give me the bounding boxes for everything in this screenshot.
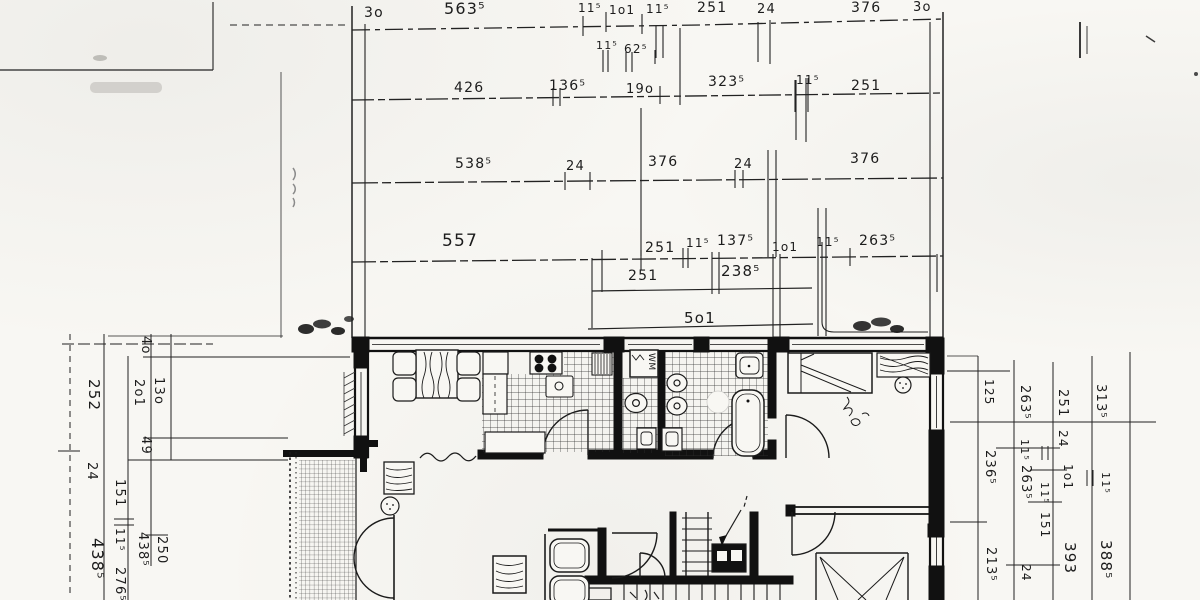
bath-sink	[736, 353, 763, 378]
dim-label: 11⁵	[796, 74, 820, 86]
dim-label: 11⁵	[1100, 472, 1111, 494]
dim-label: 62⁵	[624, 43, 648, 55]
stairs-down	[624, 584, 780, 600]
dim-label: 24	[1020, 564, 1032, 582]
dim-label: 13o	[152, 377, 165, 405]
dim-label: 538⁵	[455, 157, 492, 171]
bed-1	[788, 353, 872, 393]
dining-table	[416, 350, 458, 398]
dim-label: 251	[697, 1, 727, 15]
armchairs	[545, 534, 589, 600]
dim-label: 323⁵	[708, 75, 745, 89]
illegible-stamp	[293, 168, 295, 207]
stove	[530, 352, 562, 374]
dim-label: 251	[851, 79, 881, 93]
dim-label: 438⁵	[89, 538, 105, 580]
bedroom1-door	[786, 415, 829, 458]
dim-label: 1o1	[609, 4, 635, 16]
dim-label: 236⁵	[983, 450, 996, 485]
right-dimension-lines	[947, 352, 1156, 600]
dim-label: 238⁵	[721, 264, 760, 279]
floor-plan-scan: 3o 563⁵ 11⁵ 1o1 11⁵ 251 24 376 3o 11⁵ 62…	[0, 0, 1200, 600]
dim-label: 2o1	[132, 379, 145, 407]
bathroom	[662, 352, 768, 456]
dim-label: 3o	[364, 6, 384, 20]
wash-basin	[637, 428, 656, 449]
floor-plan-drawing	[0, 0, 1200, 600]
dim-label: 251	[628, 269, 658, 283]
dim-label: 11⁵	[1019, 439, 1030, 461]
dim-label: 1o1	[1062, 464, 1074, 490]
dim-label: 136⁵	[549, 79, 586, 93]
dim-label: 251	[1056, 389, 1069, 417]
dim-label: 251	[645, 241, 675, 255]
radiator	[592, 353, 612, 375]
dim-label: 11⁵	[1039, 482, 1050, 504]
dim-label: 388⁵	[1098, 540, 1113, 579]
dim-label: 137⁵	[717, 234, 754, 248]
dim-label: 376	[850, 152, 880, 166]
dim-label: 1o1	[772, 241, 798, 253]
living-room	[420, 453, 589, 600]
scan-artifacts	[90, 22, 1198, 600]
dim-label: 426	[454, 81, 484, 95]
toilet	[625, 394, 647, 413]
dim-label: 11⁵	[816, 236, 840, 248]
dim-label: 5o1	[684, 311, 716, 326]
dim-label: 125	[983, 379, 995, 406]
dim-label: 313⁵	[1094, 384, 1107, 419]
dim-label: 376	[648, 155, 678, 169]
scan-whiteout-spot	[707, 391, 729, 413]
dim-label: 49	[139, 436, 152, 455]
balcony-stool	[381, 497, 399, 515]
dim-label: 19o	[626, 83, 654, 96]
dim-label: 151	[1039, 512, 1051, 539]
stool	[895, 377, 911, 393]
dim-label: 438⁵	[136, 532, 149, 567]
handwritten-note-scribble	[844, 397, 869, 425]
balcony-floor-grid	[299, 460, 355, 600]
dim-label: 24	[85, 462, 98, 481]
planter-box	[384, 462, 414, 494]
bedroom-2	[816, 553, 908, 600]
wardrobe	[877, 353, 930, 377]
balcony-french-doors	[354, 515, 394, 600]
stove-box	[712, 544, 746, 572]
dim-label: 393	[1062, 542, 1077, 574]
dim-label: 24	[566, 160, 585, 173]
dim-label: 213⁵	[984, 547, 997, 582]
coffee-table	[493, 556, 526, 593]
kitchen-sink	[546, 376, 573, 397]
break-line	[420, 453, 476, 461]
dim-label: 557	[442, 233, 478, 250]
dim-label: 263⁵	[1018, 385, 1031, 420]
dim-label: 263⁵	[1019, 465, 1032, 500]
dim-label: 24	[757, 3, 776, 16]
bed-2	[816, 553, 908, 600]
dim-label: 252	[86, 379, 101, 411]
dim-label: 11⁵	[114, 528, 126, 552]
edge-marks	[1080, 22, 1155, 58]
bedroom-1	[788, 353, 930, 425]
dim-label: 3o	[913, 1, 932, 14]
kitchen	[393, 350, 614, 453]
dim-label: 24	[1057, 430, 1069, 448]
dim-label: 11⁵	[646, 3, 670, 15]
washing-machine-label: WM	[646, 353, 655, 371]
dim-label: 11⁵	[686, 237, 710, 249]
ladder	[682, 512, 712, 576]
bath-basin-2	[662, 428, 682, 451]
dim-label: 276⁵	[113, 567, 126, 600]
dim-label: 563⁵	[444, 1, 486, 17]
dim-label: 151	[113, 479, 126, 507]
bedroom2-door	[792, 512, 835, 555]
dim-label: 24	[734, 158, 753, 171]
dim-label: 263⁵	[859, 234, 896, 248]
dim-label: 250	[155, 536, 168, 564]
pencil-arrow	[719, 496, 747, 546]
window-sill-hatch	[344, 372, 355, 436]
dim-label: 11⁵	[596, 40, 618, 51]
dim-label: 11⁵	[578, 2, 602, 14]
dim-label: 4o	[139, 336, 152, 355]
dim-label: 376	[851, 1, 881, 15]
bathtub	[732, 390, 764, 456]
cutoff-handwriting	[630, 590, 659, 600]
